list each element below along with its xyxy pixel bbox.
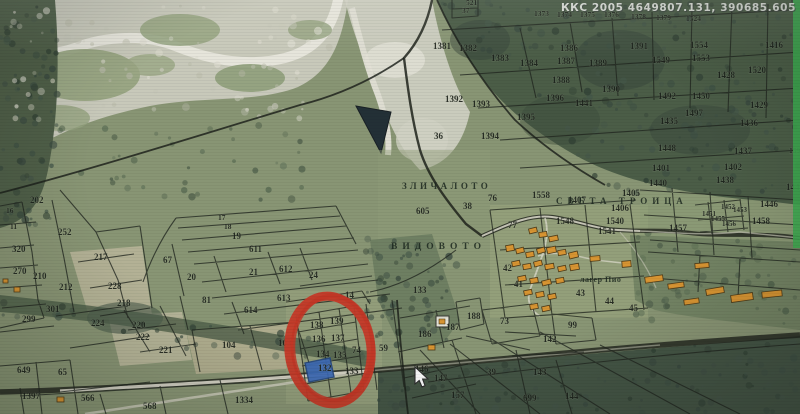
parcel-label-221: 221 xyxy=(159,345,173,355)
parcel-label-1391: 1391 xyxy=(630,41,649,51)
parcel-label-132: 132 xyxy=(318,363,332,373)
parcel-label-252: 252 xyxy=(58,227,72,237)
parcel-label-1390: 1390 xyxy=(602,84,621,94)
parcel-label-612: 612 xyxy=(279,264,293,274)
parcel-label-1458: 1458 xyxy=(752,216,771,226)
parcel-label-1553: 1553 xyxy=(692,53,711,63)
parcel-label-136: 136 xyxy=(312,334,326,344)
parcel-label-39: 39 xyxy=(487,367,497,377)
area-label: ЗЛИЧАЛОТО xyxy=(402,181,491,191)
parcel-label-270: 270 xyxy=(13,266,27,276)
parcel-label-1392: 1392 xyxy=(445,94,464,104)
parcel-label-649: 649 xyxy=(17,365,31,375)
parcel-label-1558: 1558 xyxy=(532,190,551,200)
parcel-label-1438: 1438 xyxy=(716,175,735,185)
parcel-label-614: 614 xyxy=(244,305,258,315)
parcel-label-566: 566 xyxy=(81,393,95,403)
parcel-label-73: 73 xyxy=(500,316,510,326)
area-label: СВЕТА ТРОИЦА xyxy=(556,196,688,206)
parcel-label-133: 133 xyxy=(345,366,359,376)
parcel-label-1450: 1450 xyxy=(692,91,711,101)
parcel-label-188: 188 xyxy=(467,311,481,321)
building-marker xyxy=(506,244,515,251)
parcel-label-21: 21 xyxy=(249,267,259,277)
parcel-label-76: 76 xyxy=(488,193,498,203)
parcel-label-65: 65 xyxy=(58,367,68,377)
parcel-label-41: 41 xyxy=(514,279,524,289)
building-marker xyxy=(523,263,532,269)
parcel-label-137: 137 xyxy=(331,333,345,343)
parcel-label-1436: 1436 xyxy=(740,118,759,128)
parcel-label-568: 568 xyxy=(143,401,157,411)
parcel-label-1334: 1334 xyxy=(235,395,254,405)
parcel-label-1397: 1397 xyxy=(22,391,41,401)
building-marker xyxy=(530,277,539,283)
parcel-label-1401: 1401 xyxy=(652,163,671,173)
parcel-label-16: 16 xyxy=(6,206,14,215)
parcel-label-212: 212 xyxy=(59,282,73,292)
parcel-label-613: 613 xyxy=(277,293,291,303)
building-marker xyxy=(558,265,567,272)
building-marker xyxy=(545,263,555,269)
parcel-label-699: 699 xyxy=(523,393,537,403)
parcel-label-320: 320 xyxy=(12,244,26,254)
parcel-label-1396: 1396 xyxy=(546,93,565,103)
parcel-label-218: 218 xyxy=(117,298,131,308)
parcel-label-11: 11 xyxy=(10,222,17,231)
building-marker xyxy=(570,263,580,270)
parcel-label-1453: 1453 xyxy=(733,206,748,214)
parcel-label-605: 605 xyxy=(416,206,430,216)
parcel-label-1381: 1381 xyxy=(433,41,452,51)
coordinate-readout: ККС 2005 4649807.131, 390685.605 ККС 200… xyxy=(561,2,797,15)
parcel-label-1457: 1457 xyxy=(669,223,688,233)
building-marker xyxy=(530,303,539,309)
building-marker xyxy=(558,249,567,255)
parcel-label-104: 104 xyxy=(222,340,236,350)
building-marker xyxy=(57,397,64,402)
map-photo-stage: 5213713731374137513761378137915241381138… xyxy=(0,0,800,414)
building-marker xyxy=(14,287,20,292)
parcel-label-1440: 1440 xyxy=(649,178,668,188)
parcel-label-1402: 1402 xyxy=(724,162,743,172)
building-marker xyxy=(512,260,521,267)
parcel-label-222: 222 xyxy=(136,332,150,342)
parcel-label-45: 45 xyxy=(629,303,639,313)
parcel-label-59: 59 xyxy=(379,343,389,353)
parcel-label-224: 224 xyxy=(91,318,105,328)
building-marker xyxy=(428,345,435,350)
building-marker xyxy=(622,261,631,268)
parcel-label-74: 74 xyxy=(352,345,362,355)
building-marker xyxy=(536,291,545,297)
parcel-label-1549: 1549 xyxy=(652,55,671,65)
building-marker xyxy=(542,305,551,312)
building-marker xyxy=(695,262,709,268)
parcel-label-81: 81 xyxy=(202,295,212,305)
parcel-label-44: 44 xyxy=(605,296,615,306)
parcel-label-1437: 1437 xyxy=(734,146,753,156)
parcel-label-147: 147 xyxy=(434,373,448,383)
parcel-label-42: 42 xyxy=(503,263,513,273)
parcel-label-1373: 1373 xyxy=(534,9,549,18)
parcel-label-1382: 1382 xyxy=(459,43,478,53)
parcel-label-24: 24 xyxy=(309,270,319,280)
parcel-label-187: 187 xyxy=(446,322,460,332)
svg-text:ККС 2005 4649807.131, 390685.6: ККС 2005 4649807.131, 390685.605 xyxy=(561,2,796,14)
parcel-label-1554: 1554 xyxy=(690,40,709,50)
parcel-label-17: 17 xyxy=(218,213,226,222)
building-marker xyxy=(526,251,535,257)
screen-edge-green-strip xyxy=(793,0,800,248)
parcel-label-135: 135 xyxy=(333,350,347,360)
parcel-label-1387: 1387 xyxy=(557,56,576,66)
building-marker xyxy=(3,279,8,283)
parcel-label-301: 301 xyxy=(46,304,60,314)
parcel-label-1520: 1520 xyxy=(748,65,767,75)
parcel-label-1384: 1384 xyxy=(520,58,539,68)
parcel-label-220: 220 xyxy=(132,320,146,330)
parcel-label-144: 144 xyxy=(565,391,579,401)
parcel-label-1435: 1435 xyxy=(660,116,679,126)
parcel-label-1497: 1497 xyxy=(685,108,704,118)
parcel-label-38: 38 xyxy=(463,201,473,211)
framed-building-inner xyxy=(439,319,445,324)
parcel-label-202: 202 xyxy=(30,195,44,205)
parcel-label-1394: 1394 xyxy=(481,131,500,141)
cadastral-map-canvas[interactable]: 5213713731374137513761378137915241381138… xyxy=(0,0,800,414)
parcel-label-1389: 1389 xyxy=(589,58,608,68)
parcel-label-77: 77 xyxy=(508,220,518,230)
building-marker xyxy=(548,293,557,300)
building-marker xyxy=(590,256,600,262)
parcel-label-210: 210 xyxy=(33,271,47,281)
parcel-label-138: 138 xyxy=(310,320,324,330)
parcel-label-1428: 1428 xyxy=(717,70,736,80)
parcel-label-157: 157 xyxy=(451,390,465,400)
parcel-label-1492: 1492 xyxy=(658,91,677,101)
parcel-label-142: 142 xyxy=(543,334,557,344)
parcel-label-19: 19 xyxy=(232,231,242,241)
parcel-label-1540: 1540 xyxy=(606,216,625,226)
parcel-label-228: 228 xyxy=(108,281,122,291)
parcel-label-37: 37 xyxy=(462,6,470,15)
parcel-label-1541: 1541 xyxy=(598,226,617,236)
parcel-label-36: 36 xyxy=(434,131,444,141)
parcel-label-1429: 1429 xyxy=(750,100,769,110)
parcel-label-1446: 1446 xyxy=(760,199,779,209)
parcel-label-611: 611 xyxy=(249,244,263,254)
parcel-label-20: 20 xyxy=(187,272,197,282)
parcel-label-1441: 1441 xyxy=(575,98,594,108)
parcel-label-134: 134 xyxy=(316,349,330,359)
building-marker xyxy=(546,246,556,254)
parcel-label-43: 43 xyxy=(576,288,586,298)
parcel-label-18: 18 xyxy=(224,222,232,231)
parcel-label-99: 99 xyxy=(568,320,578,330)
parcel-label-1393: 1393 xyxy=(472,99,491,109)
parcel-label-1416: 1416 xyxy=(765,40,784,50)
parcel-label-1386: 1386 xyxy=(560,43,579,53)
parcel-label-1388: 1388 xyxy=(552,75,571,85)
building-marker xyxy=(556,277,565,283)
parcel-label-217: 217 xyxy=(94,252,108,262)
parcel-label-67: 67 xyxy=(163,255,173,265)
parcel-label-1548: 1548 xyxy=(556,216,575,226)
parcel-label-1524: 1524 xyxy=(686,14,701,23)
parcel-label-1456: 1456 xyxy=(722,220,737,228)
parcel-label-186: 186 xyxy=(418,329,432,339)
parcel-label-139: 139 xyxy=(330,316,344,326)
parcel-label-133: 133 xyxy=(413,285,427,295)
parcel-label-1448: 1448 xyxy=(658,143,677,153)
area-label: ВИДОВОТО xyxy=(391,242,486,252)
building-marker xyxy=(539,231,548,237)
parcel-label-299: 299 xyxy=(22,314,36,324)
building-marker xyxy=(524,289,533,296)
parcel-label-143: 143 xyxy=(533,367,547,377)
parcel-label-1395: 1395 xyxy=(517,112,536,122)
area-label: лагер Пио xyxy=(580,275,621,284)
parcel-label-1383: 1383 xyxy=(491,53,510,63)
